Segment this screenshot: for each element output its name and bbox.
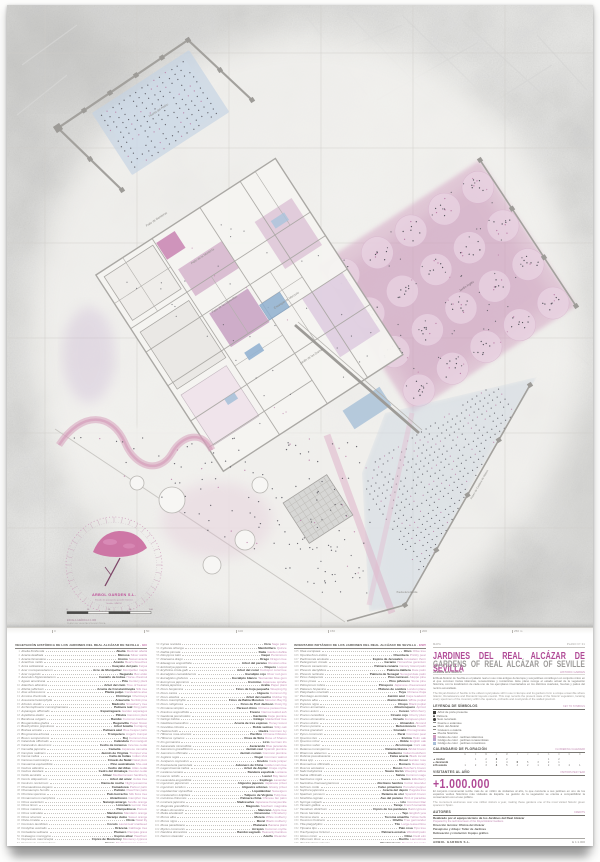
- species-header-accent: · ESPECIES CATALOGADAS: [417, 643, 426, 647]
- legend-list: Árbol de porte presentePalmeraSeto recor…: [433, 711, 585, 745]
- calendar-cell: 1: [460, 764, 470, 767]
- calendar-cell: 4: [512, 764, 522, 767]
- dotted-leader: [185, 708, 235, 709]
- ruler-tick: 200: [420, 630, 427, 633]
- dotted-leader: [331, 749, 384, 750]
- dotted-leader: [330, 692, 397, 693]
- dotted-leader: [322, 839, 398, 840]
- dotted-leader: [331, 832, 380, 833]
- dotted-leader: [41, 820, 125, 821]
- dotted-leader: [318, 681, 388, 682]
- footer-studio: ARBOL GARDEN S.L.: [433, 840, 471, 843]
- titleblock-footer: ARBOL GARDEN S.L. E 1:1.000: [433, 838, 585, 843]
- dotted-leader: [315, 760, 397, 761]
- dotted-leader: [182, 655, 260, 656]
- dotted-leader: [331, 764, 397, 765]
- dotted-leader: [179, 693, 256, 694]
- ruler-tick: 50: [144, 630, 149, 633]
- dotted-leader: [186, 802, 235, 803]
- dotted-leader: [325, 674, 368, 675]
- species-common-name: Rosa de Siria: [244, 737, 264, 741]
- dotted-leader: [321, 787, 377, 788]
- species-common-name: Palmera excelsa: [381, 831, 405, 835]
- dotted-leader: [47, 753, 99, 754]
- kicker-left: MAPA: [433, 643, 441, 646]
- dotted-leader: [56, 726, 113, 727]
- dotted-leader: [45, 689, 95, 690]
- dotted-leader: [69, 707, 112, 708]
- calendar-cell: 2: [543, 764, 553, 767]
- dotted-leader: [186, 829, 250, 830]
- dotted-leader: [189, 670, 235, 671]
- dotted-leader: [55, 839, 91, 840]
- dotted-leader: [191, 783, 237, 784]
- calendar-cell: 3: [554, 764, 564, 767]
- dotted-leader: [326, 794, 380, 795]
- dotted-leader: [51, 711, 99, 712]
- species-row: 104Nerium oleanderAdelfaOleander: [154, 835, 286, 839]
- authors-header: AUTORES CREDITS: [433, 810, 585, 816]
- dotted-leader: [45, 768, 107, 769]
- dotted-leader: [325, 730, 392, 731]
- alcazar-garden-map: ARBOL GARDEN S.L. Estudio de paisajismo …: [7, 5, 593, 627]
- dotted-leader: [181, 697, 245, 698]
- dotted-leader: [185, 727, 251, 728]
- dotted-leader: [51, 734, 106, 735]
- dotted-leader: [191, 768, 243, 769]
- dotted-leader: [42, 809, 115, 810]
- dash-marker-icon: [433, 726, 436, 727]
- dotted-leader: [326, 715, 389, 716]
- dotted-leader: [52, 836, 113, 837]
- visitors-title: VISITANTES AL AÑO: [433, 770, 470, 774]
- dotted-leader: [51, 790, 113, 791]
- species-column-1: VEGETACIÓN HISTÓRICA DE LOS JARDINES DEL…: [15, 643, 147, 843]
- logo-line2: Sevilla · MMXVI: [106, 603, 122, 605]
- visitors-title-en: VISITORS PER YEAR: [560, 771, 585, 774]
- title-block: MAPA PLANO Nº 01 JARDINES DEL REAL ALCÁZ…: [433, 643, 585, 843]
- dotted-leader: [189, 832, 236, 833]
- dotted-leader: [57, 677, 97, 678]
- map-panel: ARBOL GARDEN S.L. Estudio de paisajismo …: [7, 5, 593, 627]
- dotted-leader: [187, 787, 240, 788]
- dotted-leader: [54, 764, 109, 765]
- species-common-name: Washingtonia: [380, 842, 400, 843]
- dotted-leader: [324, 771, 384, 772]
- species-common-name: Naranjo dulce: [107, 816, 127, 820]
- dotted-leader: [44, 662, 112, 663]
- dotted-leader: [185, 836, 262, 837]
- species-english-name: Mediterranean cypress: [116, 842, 147, 843]
- calendar-cell: 1: [575, 764, 585, 767]
- dotted-leader: [185, 704, 240, 705]
- dotted-leader: [194, 765, 234, 766]
- dotted-leader: [181, 742, 261, 743]
- authors-title-en: CREDITS: [574, 811, 585, 814]
- dotted-leader: [190, 806, 244, 807]
- kicker-row: MAPA PLANO Nº 01: [433, 643, 585, 648]
- calendar-row-label: ■ Rosaleda: [433, 764, 460, 767]
- dotted-leader: [53, 745, 98, 746]
- dotted-leader: [319, 836, 403, 837]
- dotted-leader: [47, 692, 104, 693]
- species-latin-name: Nerium oleander: [161, 835, 184, 839]
- dotted-leader: [41, 756, 108, 757]
- scale-caption: ESCALA GRÁFICA 1:1.000: [67, 619, 97, 622]
- dotted-leader: [185, 813, 253, 814]
- map-label: Puerta de la Alcoba: [397, 591, 418, 594]
- dotted-leader: [185, 648, 256, 649]
- dotted-leader: [324, 824, 393, 825]
- species-column-2: 53Cycas revolutaCicaSago palm54Cydonia o…: [154, 643, 286, 843]
- dotted-leader: [190, 712, 248, 713]
- dotted-leader: [54, 670, 91, 671]
- dotted-leader: [180, 757, 253, 758]
- dotted-leader: [321, 813, 400, 814]
- dash-marker-icon: [433, 733, 436, 734]
- dotted-leader: [188, 798, 239, 799]
- dotted-leader: [194, 791, 251, 792]
- species-header-main: VEGETACIÓN HISTÓRICA DE LOS JARDINES DEL…: [15, 643, 140, 647]
- dotted-leader: [178, 821, 255, 822]
- dotted-leader: [51, 723, 112, 724]
- dotted-leader: [181, 776, 261, 777]
- calendar-header: CALENDARIO DE FLORACIÓN FLOWERING CALEND…: [433, 747, 585, 753]
- species-list-header: INVENTARIO BOTÁNICO DE LOS JARDINES DEL …: [294, 643, 426, 649]
- species-number: 104: [154, 835, 159, 839]
- dotted-leader: [193, 746, 248, 747]
- coordinate-ruler: 050100150200250 m: [7, 627, 593, 639]
- authors-lines: Dirección técnica: Oficina del AlcázarPa…: [433, 824, 585, 835]
- dotted-leader: [190, 723, 233, 724]
- dotted-leader: [322, 805, 392, 806]
- intro-paragraph-es: El Real Alcázar de Sevilla es el palacio…: [433, 677, 585, 690]
- dotted-leader: [322, 726, 394, 727]
- species-number: 156: [294, 842, 299, 843]
- dotted-leader: [321, 741, 399, 742]
- calendar-cell: 2: [564, 764, 574, 767]
- dotted-leader: [44, 813, 105, 814]
- dotted-leader: [327, 689, 377, 690]
- ruler-tick: 0: [52, 630, 56, 633]
- dotted-leader: [193, 663, 240, 664]
- intro-paragraph-en: The Royal Alcázar of Seville is the olde…: [433, 692, 585, 702]
- dotted-leader: [45, 802, 101, 803]
- dotted-leader: [320, 704, 396, 705]
- dotted-leader: [189, 753, 238, 754]
- calendar-cell: 2: [470, 764, 480, 767]
- species-column-3: INVENTARIO BOTÁNICO DE LOS JARDINES DEL …: [294, 643, 426, 843]
- kicker-right: PLANO Nº 01: [567, 643, 585, 646]
- dotted-leader: [184, 659, 258, 660]
- calendar-cell: 5: [502, 764, 512, 767]
- footer-scale: E 1:1.000: [572, 840, 585, 843]
- dotted-leader: [189, 667, 263, 668]
- dotted-leader: [194, 749, 244, 750]
- legend-item: Código de color · jardines románticos: [433, 742, 585, 745]
- author-line: Delineación y rotulación: Equipo gráfico: [433, 832, 585, 836]
- dotted-leader: [43, 704, 111, 705]
- dotted-leader: [341, 783, 376, 784]
- dotted-leader: [328, 753, 386, 754]
- circle-marker-icon: [433, 718, 436, 721]
- ruler-tick: 100: [236, 630, 243, 633]
- species-header-accent: · EN JARDÍN PLANTADO: [140, 643, 147, 647]
- dotted-leader: [47, 719, 109, 720]
- dotted-leader: [181, 719, 252, 720]
- calendar-cell: 2: [522, 764, 532, 767]
- species-common-name: Ciprés: [105, 842, 115, 843]
- species-header-main: INVENTARIO BOTÁNICO DE LOS JARDINES DEL …: [294, 643, 417, 647]
- species-common-name: Bambú sagrado: [237, 831, 260, 835]
- species-list-header: VEGETACIÓN HISTÓRICA DE LOS JARDINES DEL…: [15, 643, 147, 649]
- dotted-leader: [186, 825, 252, 826]
- dotted-leader: [54, 700, 114, 701]
- species-latin-name: Cupressus sempervirens: [21, 842, 55, 843]
- dotted-leader: [190, 761, 255, 762]
- dotted-leader: [329, 666, 373, 667]
- calendar-cell: 1: [533, 764, 543, 767]
- dotted-leader: [192, 795, 243, 796]
- dotted-leader: [193, 780, 258, 781]
- dotted-leader: [182, 644, 262, 645]
- dotted-leader: [324, 734, 396, 735]
- dotted-leader: [319, 700, 385, 701]
- dotted-leader: [50, 783, 100, 784]
- poster-floor-shadow: [12, 846, 588, 857]
- legend-title-en: KEY TO SYMBOLS: [563, 705, 585, 708]
- dotted-leader: [330, 659, 371, 660]
- dotted-leader: [330, 696, 386, 697]
- dotted-leader: [323, 802, 399, 803]
- dash-marker-icon: [433, 729, 436, 730]
- dotted-leader: [322, 745, 394, 746]
- logo-name: ARBOL GARDEN S.L.: [92, 593, 136, 597]
- dotted-leader: [50, 832, 113, 833]
- dotted-leader: [47, 794, 105, 795]
- dotted-leader: [193, 734, 249, 735]
- flowering-calendar-table: EFMAMJJASOND▲ Azahar·1232···12··● Jacara…: [433, 754, 585, 767]
- scale-caption2: PLANO DE VEGETACIÓN HISTÓRICA: [67, 622, 106, 625]
- triangle-marker-icon: [433, 714, 435, 717]
- dotted-leader: [43, 817, 105, 818]
- dotted-leader: [326, 719, 392, 720]
- calendar-cell: 4: [491, 764, 501, 767]
- dotted-leader: [46, 715, 115, 716]
- ruler-tick: 250 m: [512, 630, 522, 633]
- dotted-leader: [192, 716, 252, 717]
- calendar-title-en: FLOWERING CALENDAR: [556, 748, 585, 751]
- dotted-leader: [187, 700, 227, 701]
- visitors-figure: +1.000.000: [433, 777, 585, 791]
- legend-title: LEYENDA DE SÍMBOLOS: [433, 704, 478, 708]
- species-english-name: Mexican fan palm: [402, 842, 426, 843]
- dotted-leader: [47, 681, 121, 682]
- dotted-leader: [326, 768, 392, 769]
- dotted-leader: [50, 760, 106, 761]
- species-row: 52Cupressus sempervirensCiprésMediterran…: [15, 842, 147, 843]
- dotted-leader: [325, 790, 381, 791]
- dotted-leader: [50, 741, 112, 742]
- dotted-leader: [186, 738, 243, 739]
- dotted-leader: [179, 731, 257, 732]
- dotted-leader: [318, 828, 397, 829]
- dotted-leader: [45, 771, 97, 772]
- species-number: 52: [15, 842, 20, 843]
- dotted-leader: [182, 652, 257, 653]
- legend-item-label: Código de color · jardines románticos: [438, 742, 486, 745]
- dotted-leader: [185, 810, 256, 811]
- dotted-leader: [320, 723, 398, 724]
- species-common-name: Evónimo: [248, 681, 261, 685]
- calendar-cell: 3: [481, 764, 491, 767]
- dotted-leader: [326, 707, 392, 708]
- logo-line1: Estudio de paisajismo y jardín histórico: [95, 598, 134, 601]
- dotted-leader: [324, 798, 378, 799]
- dotted-leader: [321, 817, 384, 818]
- dotted-leader: [49, 824, 105, 825]
- dotted-leader: [323, 775, 394, 776]
- authors-title: AUTORES: [433, 810, 451, 814]
- species-row: 156Washingtonia robustaWashingtoniaMexic…: [294, 842, 426, 843]
- poster-title-en: GARDENS OF REAL ALCÁZAR OF SEVILLE: [433, 660, 585, 673]
- dotted-leader: [183, 685, 260, 686]
- ruler-tick: 150: [328, 630, 335, 633]
- dotted-leader: [54, 787, 110, 788]
- species-latin-name: Washingtonia robusta: [300, 842, 330, 843]
- dotted-leader: [190, 678, 231, 679]
- species-common-name: Adelfa: [263, 835, 272, 839]
- dotted-leader: [327, 670, 385, 671]
- calendar-title: CALENDARIO DE FLORACIÓN: [433, 747, 487, 751]
- visitors-paragraph-en: The monument welcomes over one million v…: [433, 801, 585, 808]
- dotted-leader: [322, 651, 402, 652]
- chip-blue-marker-icon: [433, 742, 436, 745]
- dotted-leader: [184, 772, 246, 773]
- dotted-leader: [43, 730, 101, 731]
- dotted-leader: [48, 828, 114, 829]
- dotted-leader: [46, 651, 115, 652]
- visitors-header: VISITANTES AL AÑO VISITORS PER YEAR: [433, 770, 585, 776]
- dotted-leader: [48, 696, 115, 697]
- dotted-leader: [324, 779, 400, 780]
- dotted-leader: [47, 659, 116, 660]
- dotted-leader: [48, 685, 102, 686]
- dotted-leader: [332, 756, 389, 757]
- dotted-leader: [191, 682, 247, 683]
- dash-marker-icon: [433, 722, 436, 723]
- dotted-leader: [51, 738, 122, 739]
- species-english-name: Oleander: [274, 835, 287, 839]
- species-common-name: Árbol del paraíso: [242, 662, 267, 666]
- dotted-leader: [329, 662, 383, 663]
- dotted-leader: [177, 817, 253, 818]
- dotted-leader: [57, 798, 109, 799]
- dotted-leader: [320, 711, 397, 712]
- dotted-leader: [329, 655, 392, 656]
- dotted-leader: [329, 809, 372, 810]
- bottom-section: VEGETACIÓN HISTÓRICA DE LOS JARDINES DEL…: [7, 639, 593, 843]
- species-common-name: Arce de Montpellier: [93, 669, 122, 673]
- dotted-leader: [39, 805, 115, 806]
- dotted-leader: [185, 689, 235, 690]
- dotted-leader: [198, 674, 244, 675]
- dotted-leader: [319, 738, 401, 739]
- legend-header: LEYENDA DE SÍMBOLOS KEY TO SYMBOLS: [433, 704, 585, 710]
- dotted-leader: [42, 674, 118, 675]
- dotted-leader: [327, 820, 392, 821]
- dotted-leader: [45, 655, 117, 656]
- dotted-leader: [47, 749, 107, 750]
- poster: ARBOL GARDEN S.L. Estudio de paisajismo …: [7, 5, 593, 846]
- dotted-leader: [326, 685, 377, 686]
- dotted-leader: [43, 775, 101, 776]
- dotted-leader: [325, 677, 387, 678]
- dotted-leader: [45, 666, 111, 667]
- dotted-leader: [49, 779, 109, 780]
